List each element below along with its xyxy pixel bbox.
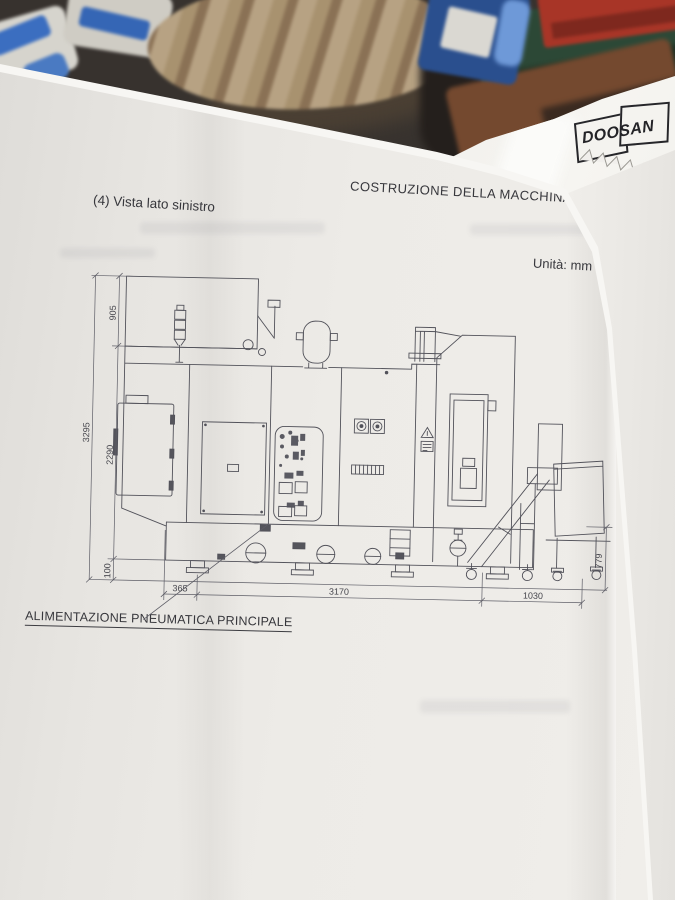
bleed-through: [470, 224, 588, 235]
dimension-lines: [85, 272, 618, 609]
photo-of-manual-page: DOOSAN (4) Vista lato sinistro COSTRUZIO…: [0, 0, 675, 900]
vent-grille: [351, 465, 383, 475]
bleed-through: [60, 248, 155, 258]
dim-mid-height: 2290: [105, 445, 115, 465]
dim-body-length: 3170: [329, 586, 349, 596]
dim-upper-height: 905: [108, 305, 118, 320]
machine-drawing: 3295 905 2290 100 365 3170 1030 779: [66, 262, 639, 639]
bleed-through: [420, 700, 570, 713]
dim-overall-height: 3295: [81, 422, 91, 442]
leader-line: [143, 522, 268, 623]
dim-cart-height: 779: [594, 553, 604, 568]
units-label: Unità: mm: [533, 255, 593, 273]
dim-base-height: 100: [102, 563, 112, 578]
pneumatic-inlet: [260, 525, 270, 531]
pressure-gauges: [354, 419, 384, 434]
dimension-labels: 3295 905 2290 100 365 3170 1030 779: [78, 305, 609, 602]
bleed-through: [140, 222, 325, 234]
machine-outline: [111, 276, 616, 582]
dim-front-offset: 365: [172, 583, 187, 593]
leveling-feet: [186, 560, 508, 579]
dim-conveyor-length: 1030: [523, 591, 543, 601]
warning-label: [421, 427, 433, 451]
